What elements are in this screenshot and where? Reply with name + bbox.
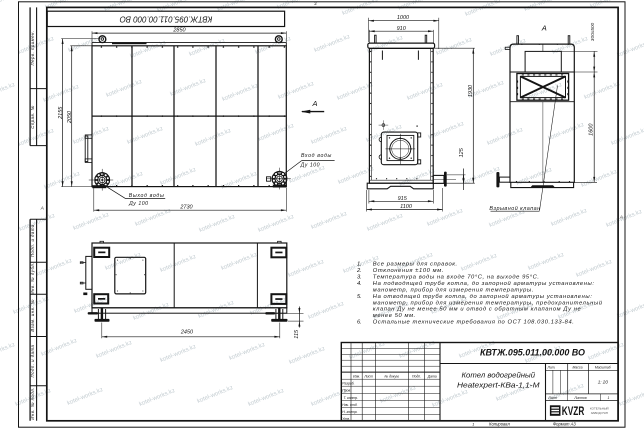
svg-text:1100: 1100 bbox=[400, 204, 413, 210]
svg-text:1: 1 bbox=[608, 396, 610, 400]
svg-text:Справ. №: Справ. № bbox=[30, 105, 35, 129]
svg-text:Н. контр.: Н. контр. bbox=[342, 410, 357, 414]
svg-text:манометр, прибор для измерения: манометр, прибор для измерения температу… bbox=[373, 287, 534, 293]
svg-text:2155: 2155 bbox=[58, 106, 64, 120]
svg-text:915: 915 bbox=[398, 196, 408, 202]
svg-text:№ докум.: № докум. bbox=[385, 375, 400, 379]
svg-text:А: А bbox=[311, 99, 317, 108]
svg-text:Подп. и дата: Подп. и дата bbox=[30, 344, 35, 377]
svg-text:Нач. отд.: Нач. отд. bbox=[342, 403, 357, 407]
svg-text:2.: 2. bbox=[356, 268, 362, 274]
svg-text:1: 20: 1: 20 bbox=[598, 379, 609, 384]
svg-text:1600: 1600 bbox=[589, 123, 595, 136]
svg-text:1.: 1. bbox=[357, 262, 362, 268]
svg-text:На отводящей трубе котла, до з: На отводящей трубе котла, до запорной ар… bbox=[373, 293, 593, 300]
svg-text:А: А bbox=[40, 206, 44, 211]
svg-text:манометр, прибор для измерения: манометр, прибор для измерения температу… bbox=[373, 299, 603, 306]
svg-text:Подп.: Подп. bbox=[412, 375, 421, 379]
svg-text:2730: 2730 bbox=[179, 205, 193, 211]
svg-text:Разраб.: Разраб. bbox=[342, 382, 354, 386]
svg-text:Подп. и дата: Подп. и дата bbox=[30, 224, 35, 257]
svg-text:КОТЕЛЬНЫЙ: КОТЕЛЬНЫЙ bbox=[590, 407, 609, 411]
svg-text:1930: 1930 bbox=[468, 84, 474, 97]
svg-text:1: 1 bbox=[472, 422, 474, 426]
svg-text:2450: 2450 bbox=[180, 329, 194, 335]
svg-text:Изм.: Изм. bbox=[353, 375, 360, 379]
svg-text:КВТЖ.095.011.00.000 ВО: КВТЖ.095.011.00.000 ВО bbox=[120, 15, 213, 24]
svg-text:125: 125 bbox=[459, 147, 465, 157]
svg-text:Копировал: Копировал bbox=[489, 421, 510, 426]
svg-text:Остальные технические требован: Остальные технические требования по ОСТ … bbox=[373, 320, 575, 326]
svg-text:Вход воды: Вход воды bbox=[301, 153, 332, 159]
svg-text:Выход воды: Выход воды bbox=[129, 193, 165, 199]
svg-text:5.: 5. bbox=[357, 294, 362, 300]
svg-text:Пров.: Пров. bbox=[342, 389, 351, 393]
svg-text:Ду 100: Ду 100 bbox=[128, 201, 148, 207]
svg-text:2850: 2850 bbox=[172, 28, 186, 34]
svg-text:А: А bbox=[541, 24, 547, 33]
svg-text:ЗАВОД РЭП: ЗАВОД РЭП bbox=[591, 411, 608, 415]
svg-text:Взрывной клапан: Взрывной клапан bbox=[489, 205, 540, 212]
svg-text:6.: 6. bbox=[357, 320, 362, 326]
svg-text:2050: 2050 bbox=[67, 110, 73, 124]
svg-text:Лист: Лист bbox=[363, 375, 373, 379]
svg-text:115: 115 bbox=[294, 329, 300, 339]
svg-text:Котел водогрейный: Котел водогрейный bbox=[462, 370, 536, 379]
svg-text:Инв. № подл.: Инв. № подл. bbox=[30, 387, 35, 420]
svg-text:Лист: Лист bbox=[547, 396, 557, 400]
svg-text:клапан Ду не менее 50 мм и отв: клапан Ду не менее 50 мм и отвод с обрат… bbox=[373, 307, 582, 313]
svg-text:Формат А3: Формат А3 bbox=[553, 421, 577, 426]
svg-text:3.: 3. bbox=[357, 275, 362, 281]
svg-text:КВТЖ.095.011.00.000 ВО: КВТЖ.095.011.00.000 ВО bbox=[480, 348, 585, 358]
svg-text:Взам. инв. №: Взам. инв. № bbox=[30, 299, 35, 332]
svg-text:На подводящей трубе котла, до: На подводящей трубе котла, до запорной а… bbox=[373, 280, 595, 287]
svg-text:Утв.: Утв. bbox=[342, 417, 350, 421]
svg-text:Все размеры для справок.: Все размеры для справок. bbox=[373, 262, 458, 268]
svg-text:Heatexpert-КВа-1,1-М: Heatexpert-КВа-1,1-М bbox=[457, 380, 540, 389]
svg-text:А: А bbox=[619, 214, 623, 219]
svg-text:300х500: 300х500 bbox=[590, 22, 596, 41]
svg-text:Масштаб: Масштаб bbox=[595, 366, 611, 370]
svg-text:1000: 1000 bbox=[397, 15, 410, 21]
svg-text:Дата: Дата bbox=[427, 375, 437, 379]
svg-text:KVZR: KVZR bbox=[562, 406, 585, 418]
svg-text:Т. контр.: Т. контр. bbox=[344, 396, 359, 400]
svg-text:910: 910 bbox=[397, 26, 407, 32]
svg-text:Масса: Масса bbox=[572, 366, 582, 370]
svg-text:Отклонения ±100 мм.: Отклонения ±100 мм. bbox=[373, 268, 444, 274]
svg-text:Ду 100: Ду 100 bbox=[300, 162, 320, 168]
svg-text:Инв. № дубл.: Инв. № дубл. bbox=[30, 262, 35, 294]
svg-text:Листов: Листов bbox=[573, 396, 587, 400]
svg-text:менее 50 мм.: менее 50 мм. bbox=[373, 313, 416, 319]
svg-text:Температура воды на входе 70°С: Температура воды на входе 70°С, на выход… bbox=[373, 275, 540, 281]
svg-text:Лит.: Лит. bbox=[547, 366, 556, 370]
svg-text:Перв. примен.: Перв. примен. bbox=[30, 30, 35, 65]
svg-text:4.: 4. bbox=[357, 281, 362, 287]
